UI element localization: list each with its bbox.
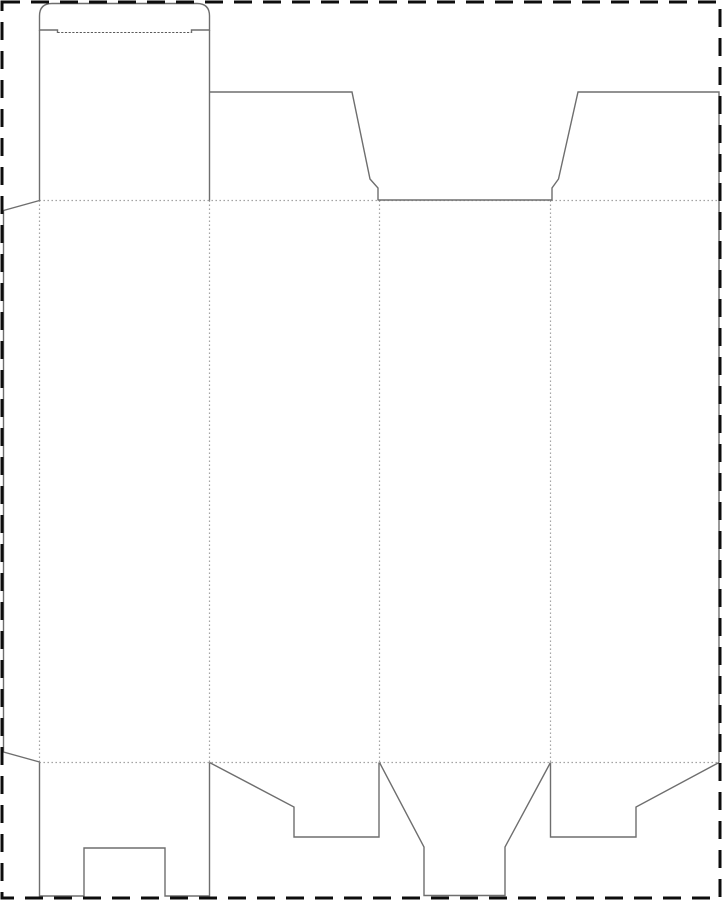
dust-flap-left-outline — [210, 92, 379, 201]
tuck-flap-outline — [40, 4, 210, 34]
glue-tab-outline — [4, 201, 40, 763]
dust-flap-right-outline — [552, 92, 719, 763]
bottom-flap-panel-1-notched-outline — [40, 763, 210, 897]
box-dieline-drawing — [0, 0, 722, 900]
bottom-flap-panel-2-step-outline — [210, 763, 380, 838]
bottom-flap-panel-3-funnel-outline — [380, 763, 551, 896]
bottom-flap-panel-4-step-outline — [551, 763, 720, 838]
dieline-sheet — [0, 0, 722, 900]
